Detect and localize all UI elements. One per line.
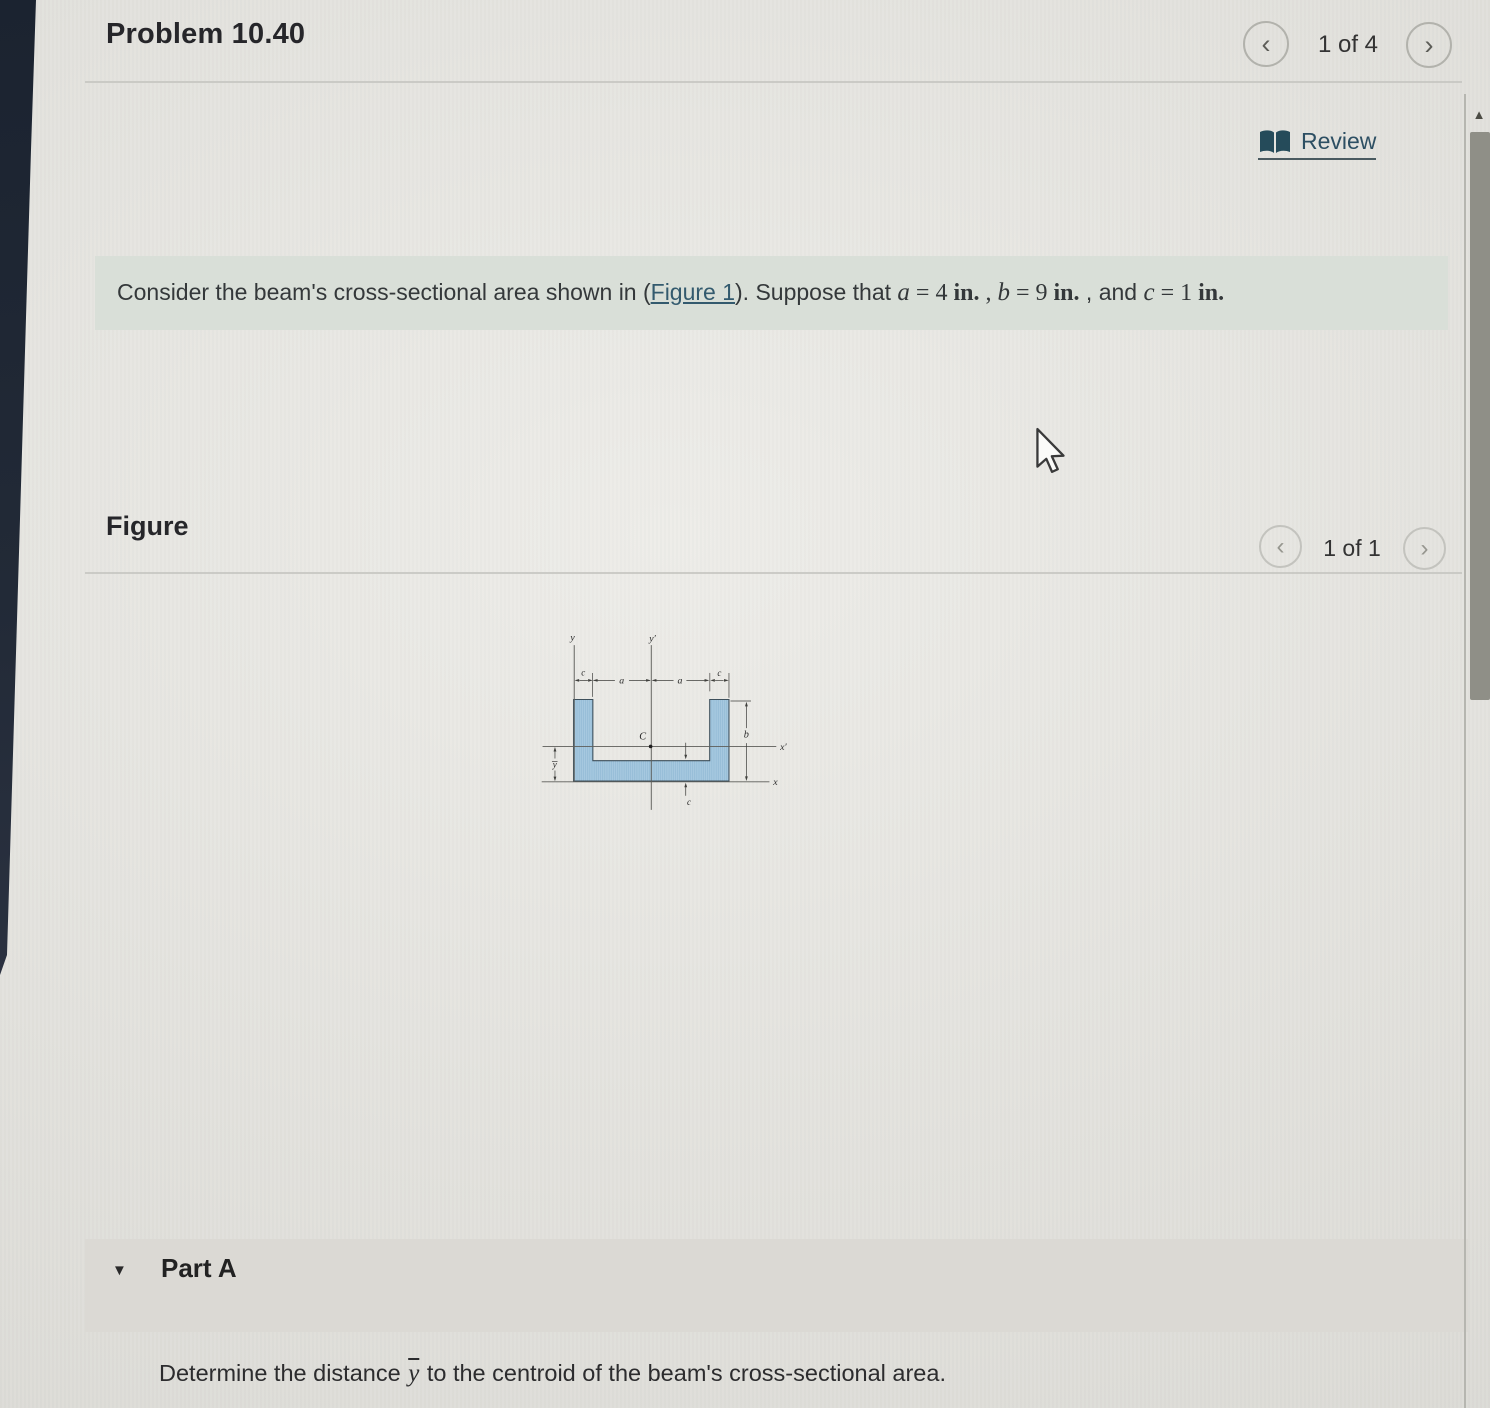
separator-1: ,	[979, 280, 997, 306]
figure-pager-label: 1 of 1	[1305, 535, 1399, 562]
dim-label-a-left: a	[619, 675, 624, 686]
figure-1-link[interactable]: Figure 1	[651, 279, 735, 305]
unit-c: in.	[1198, 280, 1224, 306]
problem-statement-panel: Consider the beam's cross-sectional area…	[95, 256, 1448, 330]
mouse-cursor	[1033, 427, 1069, 475]
unit-b: in.	[1054, 280, 1080, 306]
dim-label-a-right: a	[677, 675, 682, 686]
var-a: a	[897, 279, 910, 306]
dim-label-c-bottom: c	[687, 797, 691, 807]
part-a-question: Determine the distance y to the centroid…	[159, 1360, 946, 1388]
figure-divider	[85, 572, 1462, 574]
page: Problem 10.40 ‹ 1 of 4 › Review Consider…	[0, 0, 1490, 1408]
figure-image: y y′ x′ x	[430, 628, 1090, 1098]
dim-label-b: b	[744, 730, 749, 741]
scrollbar-thumb[interactable]	[1470, 132, 1490, 700]
question-before: Determine the distance	[159, 1360, 407, 1386]
scroll-up-button[interactable]: ▲	[1468, 98, 1490, 130]
header-divider	[85, 81, 1462, 83]
problem-prev-button[interactable]: ‹	[1243, 21, 1289, 67]
book-icon	[1258, 129, 1292, 155]
figure-prev-button[interactable]: ‹	[1259, 525, 1302, 568]
axis-label-y-prime: y′	[648, 633, 656, 644]
chevron-right-icon: ›	[1421, 537, 1429, 561]
axis-label-y: y	[569, 632, 575, 643]
ybar-symbol: y	[407, 1360, 420, 1387]
page-title: Problem 10.40	[106, 18, 305, 51]
collapse-triangle-icon: ▼	[112, 1262, 127, 1279]
dim-label-c-left: c	[581, 668, 585, 678]
scroll-up-arrow-icon: ▲	[1473, 107, 1486, 122]
question-after: to the centroid of the beam's cross-sect…	[420, 1360, 946, 1386]
var-b: b	[997, 279, 1010, 306]
content-scroll-divider	[1464, 94, 1466, 1408]
dim-label-c-right: c	[717, 668, 721, 678]
value-c: = 1	[1155, 280, 1199, 306]
problem-statement-text: Consider the beam's cross-sectional area…	[95, 279, 1224, 307]
review-label: Review	[1301, 128, 1376, 155]
chevron-left-icon: ‹	[1277, 535, 1285, 559]
figure-next-button[interactable]: ›	[1403, 527, 1446, 570]
statement-intro: Consider the beam's cross-sectional area…	[117, 279, 651, 305]
problem-pager-label: 1 of 4	[1300, 31, 1396, 59]
value-b: = 9	[1010, 280, 1054, 306]
part-a-label: Part A	[161, 1253, 237, 1284]
axis-label-x: x	[772, 777, 778, 788]
chevron-right-icon: ›	[1425, 32, 1434, 59]
review-link[interactable]: Review	[1258, 128, 1376, 160]
centroid-label: C	[639, 732, 646, 743]
var-c: c	[1143, 279, 1154, 306]
centroid-dot	[649, 745, 653, 749]
problem-next-button[interactable]: ›	[1406, 22, 1452, 68]
chevron-left-icon: ‹	[1262, 31, 1271, 58]
figure-heading: Figure	[106, 511, 189, 542]
screen-bezel	[0, 0, 44, 990]
statement-after-link: ). Suppose that	[735, 279, 897, 305]
value-a: = 4	[910, 280, 954, 306]
unit-a: in.	[953, 280, 979, 306]
part-a-header[interactable]: ▼ Part A	[85, 1239, 1468, 1332]
axis-label-x-prime: x′	[779, 742, 787, 753]
separator-2: , and	[1080, 279, 1144, 305]
